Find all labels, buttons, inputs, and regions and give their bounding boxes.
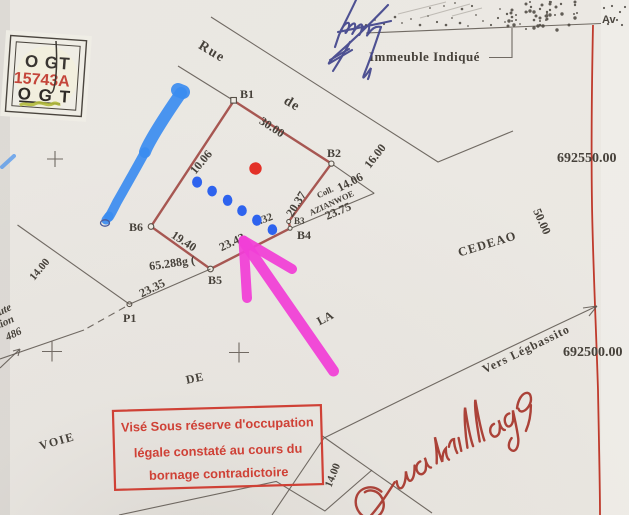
svg-text:Av: Av [602,14,617,26]
svg-text:P1: P1 [123,311,136,325]
svg-text:B2: B2 [327,146,341,160]
svg-text:Immeuble Indiqué: Immeuble Indiqué [369,49,480,64]
svg-text:692550.00: 692550.00 [557,151,617,166]
svg-text:B1: B1 [240,87,254,101]
svg-text:B6: B6 [129,220,143,234]
svg-text:692500.00: 692500.00 [563,345,623,360]
svg-text:B5: B5 [208,273,222,287]
svg-text:B4: B4 [297,228,311,242]
